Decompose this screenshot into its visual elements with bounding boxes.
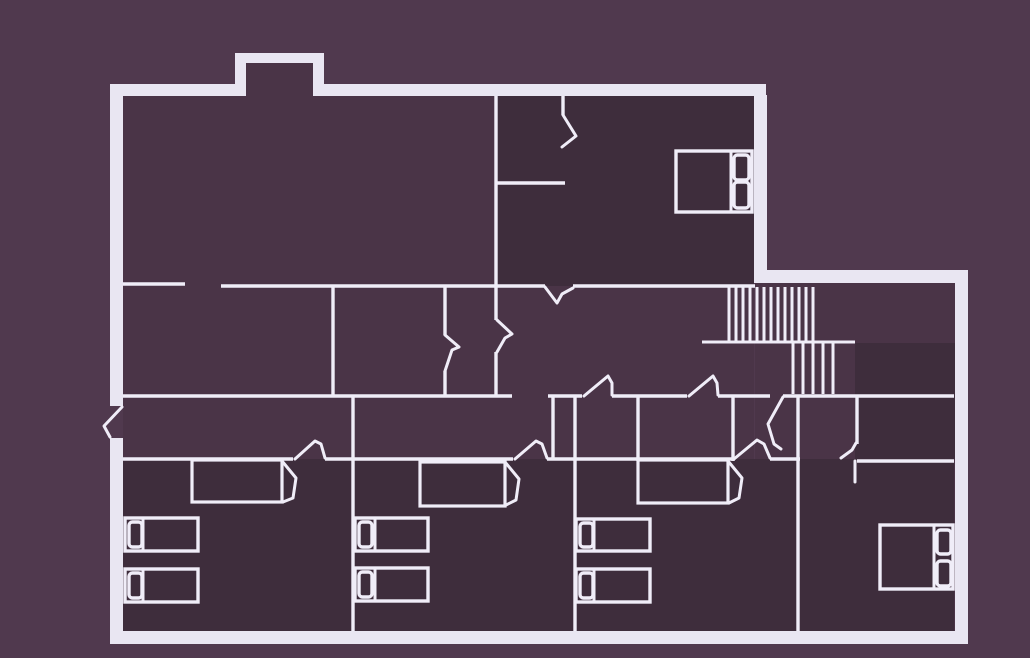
- wall-outer: [313, 84, 766, 96]
- wall-outer: [110, 84, 245, 96]
- room-area: [123, 459, 954, 631]
- wall-outer: [110, 631, 968, 644]
- room-area: [855, 343, 955, 459]
- floorplan-canvas: [0, 0, 1030, 658]
- room-area: [497, 96, 754, 286]
- wall-outer: [313, 53, 324, 96]
- wall-outer: [110, 84, 123, 406]
- wall-outer: [235, 53, 324, 63]
- wall-outer: [110, 438, 123, 644]
- entry-door-swing: [104, 407, 122, 437]
- wall-outer: [955, 270, 968, 644]
- wall-outer: [754, 270, 968, 283]
- floorplan-svg: [0, 0, 1030, 658]
- wall-outer: [754, 95, 767, 281]
